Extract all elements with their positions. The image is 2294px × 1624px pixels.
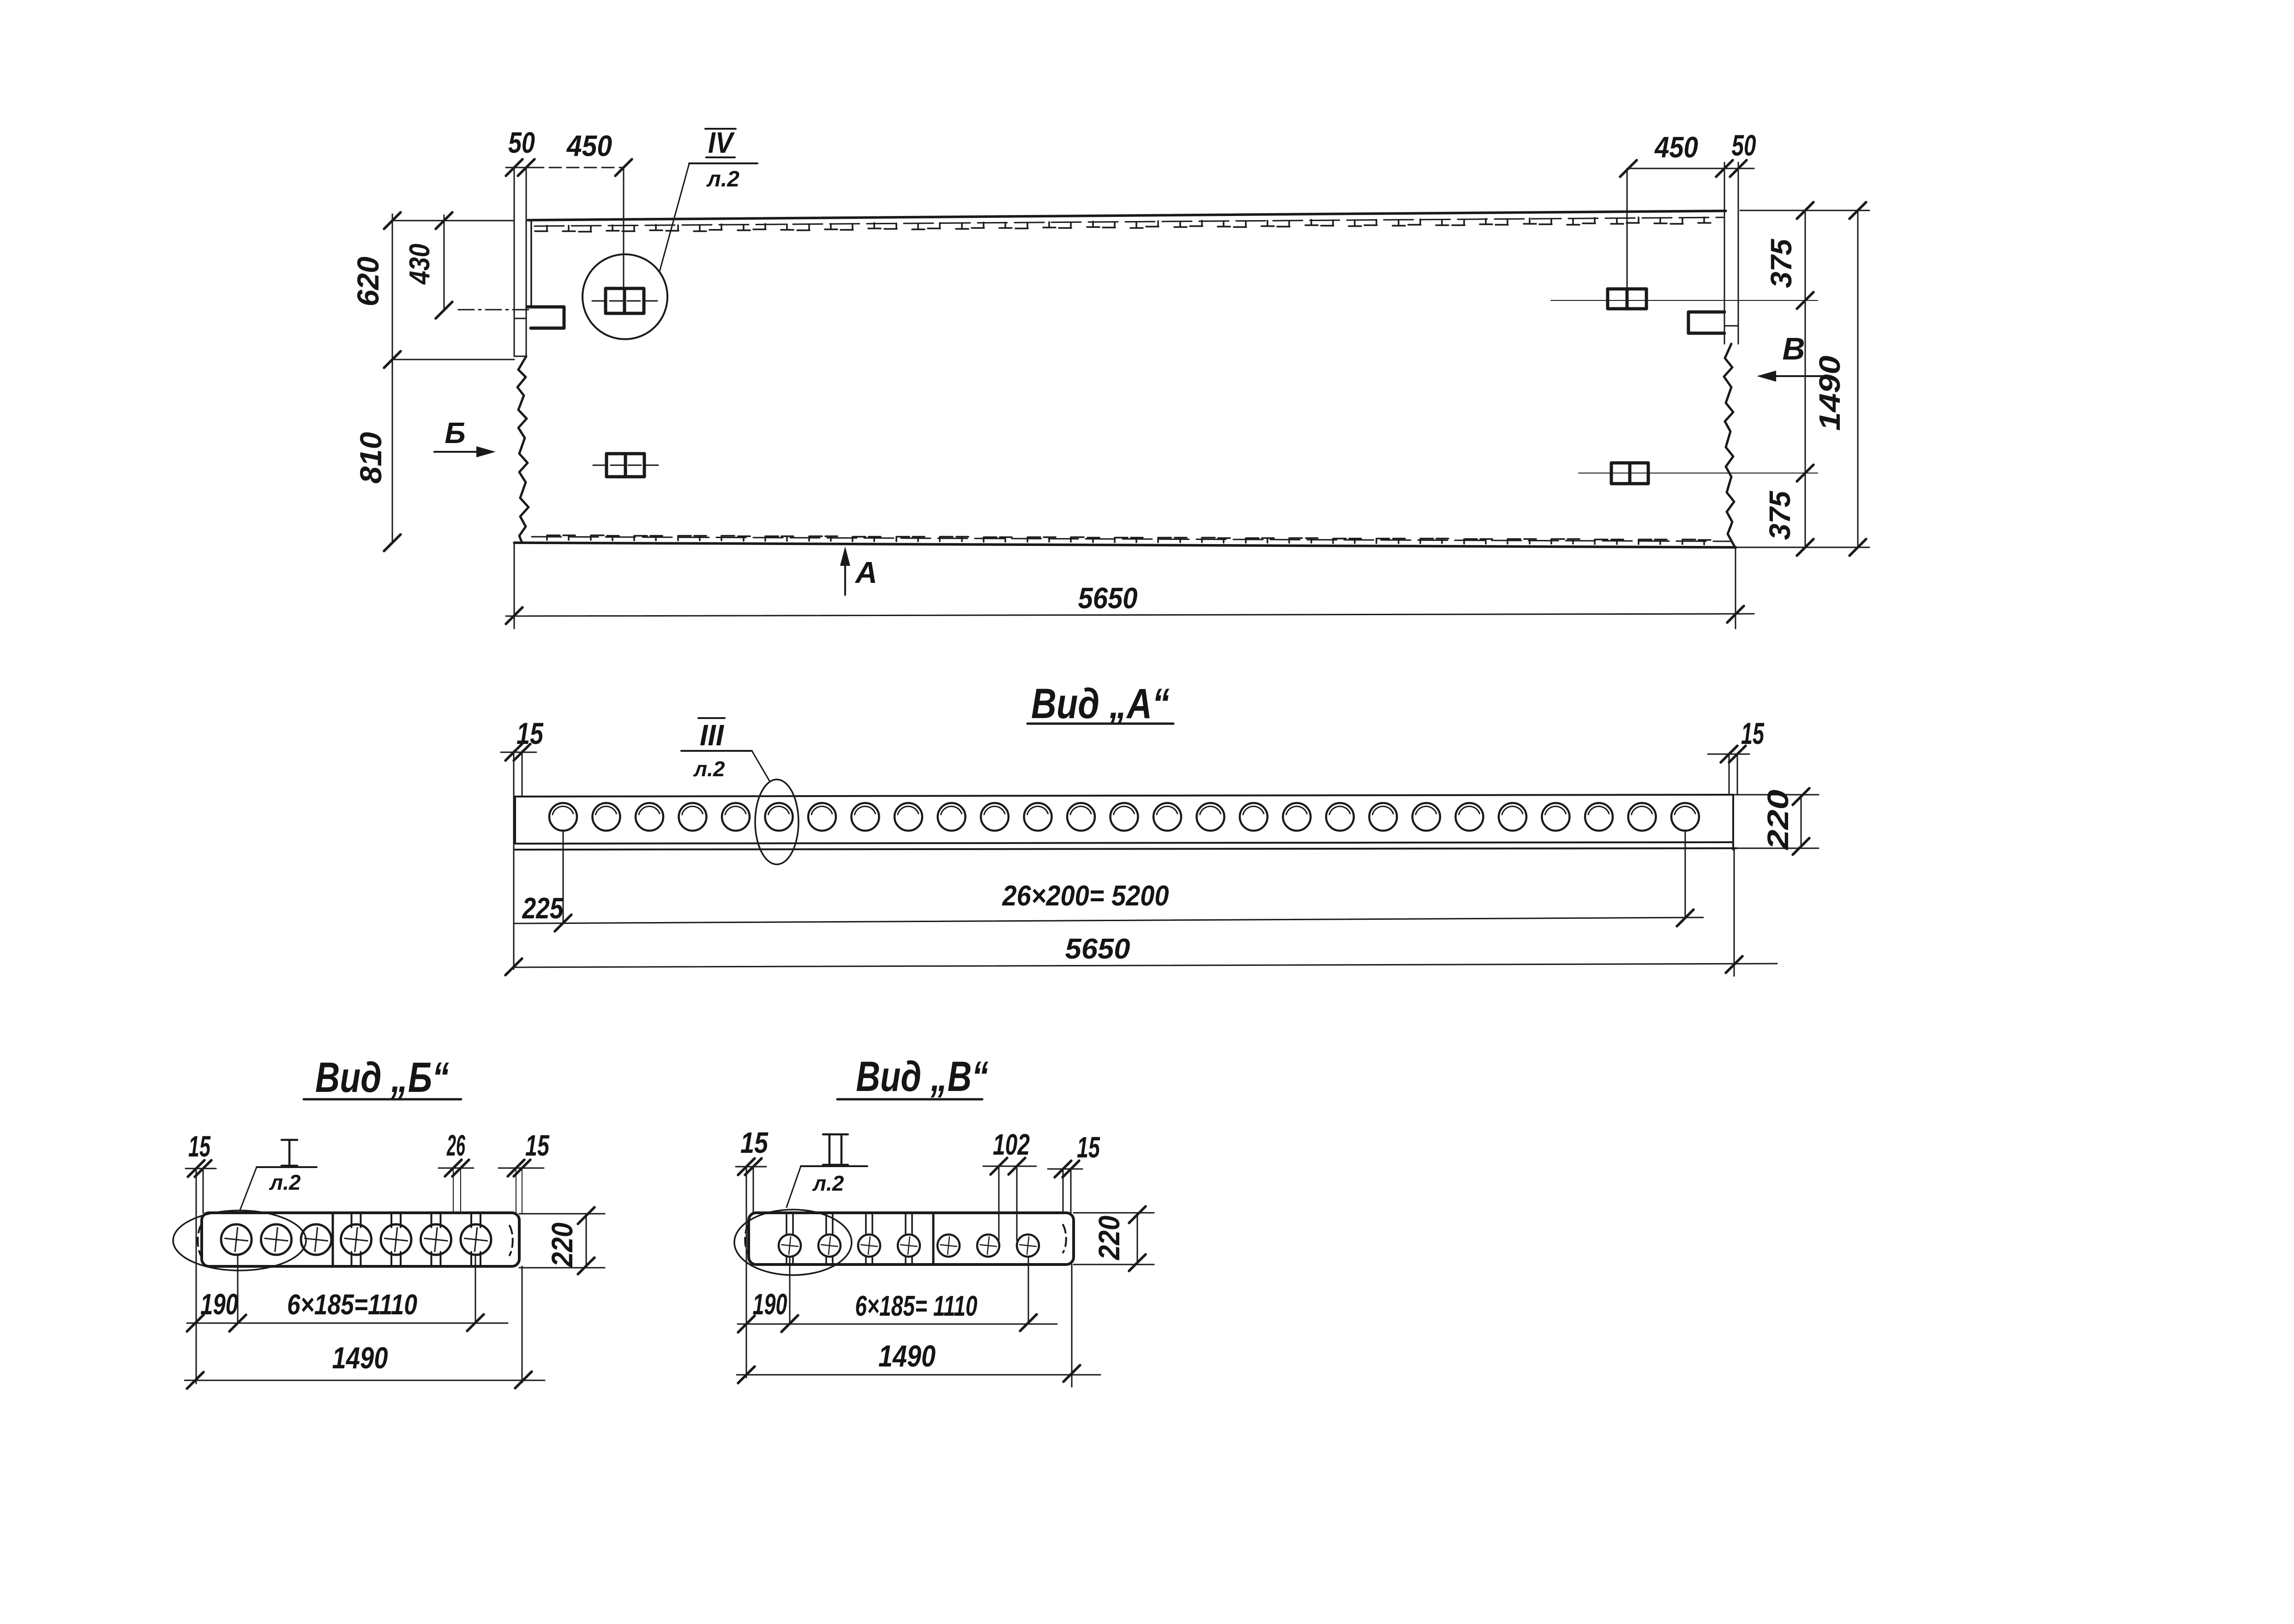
svg-text:810: 810 <box>354 432 388 484</box>
svg-text:Вид „А“: Вид „А“ <box>1031 680 1170 727</box>
svg-text:15: 15 <box>525 1129 550 1162</box>
svg-text:26×200= 5200: 26×200= 5200 <box>1002 880 1169 912</box>
svg-text:1490: 1490 <box>878 1339 936 1373</box>
svg-text:Вид „Б“: Вид „Б“ <box>315 1054 449 1101</box>
svg-text:15: 15 <box>1741 716 1765 750</box>
svg-text:5650: 5650 <box>1065 933 1130 965</box>
svg-text:50: 50 <box>508 126 535 159</box>
svg-text:1490: 1490 <box>1813 356 1846 431</box>
svg-text:15: 15 <box>1077 1131 1100 1164</box>
svg-text:450: 450 <box>1654 131 1698 164</box>
svg-text:6×185=1110: 6×185=1110 <box>287 1289 417 1321</box>
svg-text:л.2: л.2 <box>693 757 725 781</box>
svg-text:375: 375 <box>1765 239 1798 288</box>
svg-text:IV: IV <box>708 126 735 159</box>
svg-text:190: 190 <box>753 1288 787 1321</box>
svg-text:15: 15 <box>740 1126 769 1159</box>
svg-text:л.2: л.2 <box>706 167 739 192</box>
svg-text:430: 430 <box>404 244 436 285</box>
svg-text:III: III <box>700 719 724 752</box>
svg-text:220: 220 <box>546 1222 579 1267</box>
svg-text:102: 102 <box>993 1128 1030 1161</box>
svg-text:л.2: л.2 <box>269 1170 301 1194</box>
svg-text:5650: 5650 <box>1078 581 1138 615</box>
svg-text:Вид „В“: Вид „В“ <box>856 1053 989 1100</box>
svg-text:620: 620 <box>351 257 385 306</box>
svg-text:15: 15 <box>188 1130 211 1163</box>
svg-text:220: 220 <box>1093 1216 1126 1260</box>
svg-text:220: 220 <box>1761 790 1795 850</box>
svg-text:190: 190 <box>200 1288 238 1321</box>
svg-text:л.2: л.2 <box>812 1171 844 1195</box>
svg-text:450: 450 <box>566 129 612 162</box>
svg-text:50: 50 <box>1732 129 1756 162</box>
svg-text:375: 375 <box>1763 491 1796 540</box>
svg-text:1490: 1490 <box>332 1341 388 1375</box>
svg-text:225: 225 <box>522 892 564 925</box>
svg-text:26: 26 <box>446 1129 465 1162</box>
svg-text:6×185= 1110: 6×185= 1110 <box>855 1290 978 1322</box>
svg-text:Б: Б <box>444 416 465 449</box>
svg-text:А: А <box>854 555 877 589</box>
svg-text:В: В <box>1782 331 1805 366</box>
